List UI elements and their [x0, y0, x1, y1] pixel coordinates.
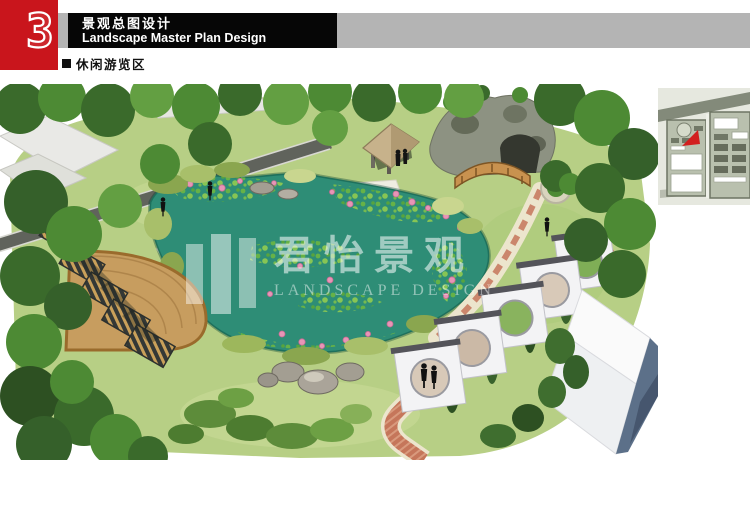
thumbnail-right-parcel [710, 112, 750, 198]
thumbnail-left-parcel [667, 120, 706, 196]
page-title-en: Landscape Master Plan Design [82, 31, 337, 45]
section-header: 休闲游览区 [62, 54, 146, 73]
section-bullet-icon [62, 59, 71, 68]
section-label: 休闲游览区 [76, 54, 146, 73]
chapter-number: 3 [26, 10, 54, 52]
site-location-thumbnail [658, 88, 750, 205]
slide-page: 景观总图设计 Landscape Master Plan Design 3 休闲… [0, 0, 750, 531]
header-title-bar: 景观总图设计 Landscape Master Plan Design [68, 13, 337, 48]
page-title-zh: 景观总图设计 [82, 16, 337, 31]
chapter-number-icon: 3 [24, 10, 68, 52]
master-plan-rendering [0, 84, 658, 460]
